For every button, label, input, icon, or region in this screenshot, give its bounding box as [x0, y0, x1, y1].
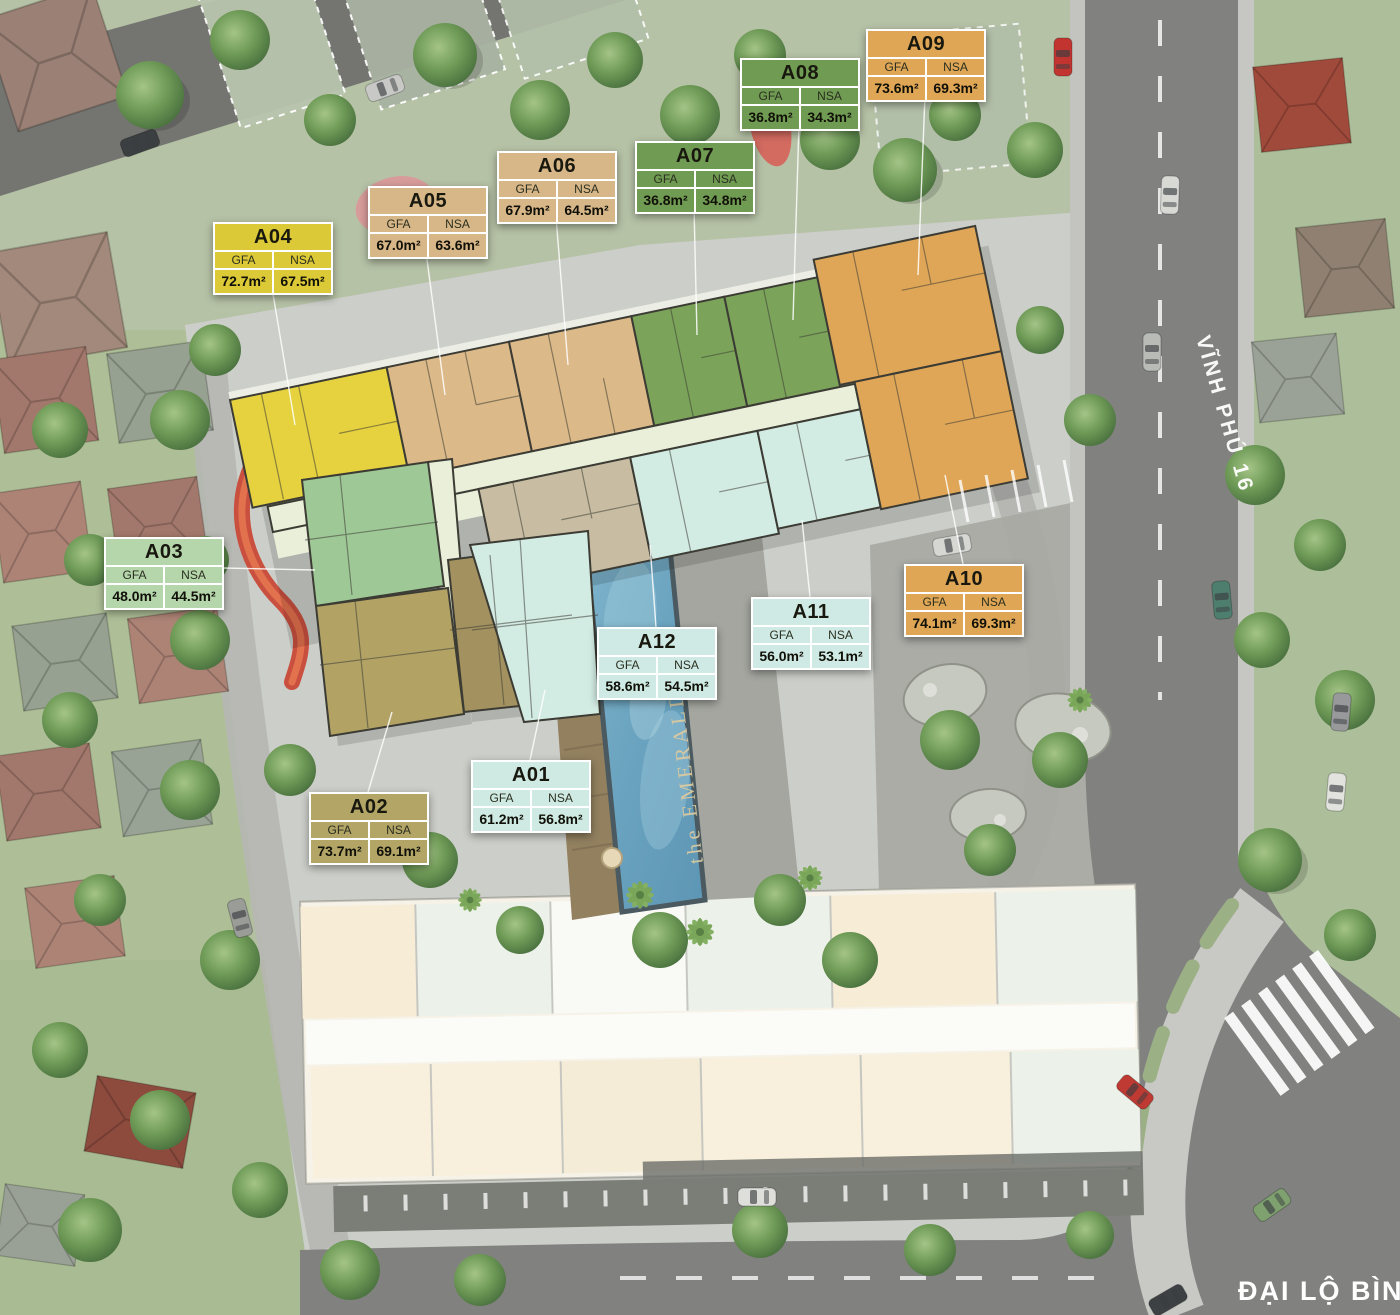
nsa-value: 44.5m² [163, 585, 222, 608]
unit-code: A04 [215, 224, 331, 252]
nsa-value: 69.3m² [963, 612, 1022, 635]
lower-building [300, 884, 1144, 1232]
unit-code: A07 [637, 143, 753, 171]
unit-code: A03 [106, 539, 222, 567]
gfa-header: GFA [753, 627, 810, 645]
unit-label-a06: A06 GFANSA 67.9m²64.5m² [497, 151, 617, 224]
unit-code: A11 [753, 599, 869, 627]
gfa-value: 73.7m² [311, 840, 368, 863]
gfa-value: 67.9m² [499, 199, 556, 222]
nsa-value: 34.8m² [694, 189, 753, 212]
nsa-header: NSA [368, 822, 427, 840]
unit-code: A02 [311, 794, 427, 822]
gfa-header: GFA [370, 216, 427, 234]
unit-code: A12 [599, 629, 715, 657]
gfa-value: 36.8m² [637, 189, 694, 212]
nsa-header: NSA [963, 594, 1022, 612]
nsa-header: NSA [925, 59, 984, 77]
unit-label-a07: A07 GFANSA 36.8m²34.8m² [635, 141, 755, 214]
unit-code: A05 [370, 188, 486, 216]
gfa-value: 58.6m² [599, 675, 656, 698]
street-name-dai-lo-binh: ĐẠI LỘ BÌNH [1238, 1275, 1400, 1306]
gfa-header: GFA [599, 657, 656, 675]
unit-label-a03: A03 GFANSA 48.0m²44.5m² [104, 537, 224, 610]
gfa-value: 72.7m² [215, 270, 272, 293]
nsa-value: 54.5m² [656, 675, 715, 698]
unit-area-a02 [316, 588, 464, 736]
nsa-value: 53.1m² [810, 645, 869, 668]
unit-code: A01 [473, 762, 589, 790]
nsa-header: NSA [427, 216, 486, 234]
unit-label-a04: A04 GFANSA 72.7m²67.5m² [213, 222, 333, 295]
gfa-value: 67.0m² [370, 234, 427, 257]
nsa-value: 67.5m² [272, 270, 331, 293]
gfa-header: GFA [215, 252, 272, 270]
nsa-header: NSA [694, 171, 753, 189]
nsa-header: NSA [163, 567, 222, 585]
nsa-header: NSA [810, 627, 869, 645]
unit-code: A09 [868, 31, 984, 59]
nsa-value: 63.6m² [427, 234, 486, 257]
unit-label-a10: A10 GFANSA 74.1m²69.3m² [904, 564, 1024, 637]
unit-code: A06 [499, 153, 615, 181]
nsa-value: 34.3m² [799, 106, 858, 129]
nsa-header: NSA [530, 790, 589, 808]
unit-label-a01: A01 GFANSA 61.2m²56.8m² [471, 760, 591, 833]
unit-area-a11 [757, 409, 880, 528]
nsa-value: 69.1m² [368, 840, 427, 863]
unit-label-a11: A11 GFANSA 56.0m²53.1m² [751, 597, 871, 670]
gfa-value: 74.1m² [906, 612, 963, 635]
gfa-value: 56.0m² [753, 645, 810, 668]
gfa-header: GFA [311, 822, 368, 840]
gfa-value: 48.0m² [106, 585, 163, 608]
nsa-header: NSA [556, 181, 615, 199]
unit-label-a05: A05 GFANSA 67.0m²63.6m² [368, 186, 488, 259]
gfa-header: GFA [637, 171, 694, 189]
unit-label-a12: A12 GFANSA 58.6m²54.5m² [597, 627, 717, 700]
gfa-header: GFA [499, 181, 556, 199]
unit-label-a09: A09 GFANSA 73.6m²69.3m² [866, 29, 986, 102]
nsa-value: 56.8m² [530, 808, 589, 831]
unit-label-a08: A08 GFANSA 36.8m²34.3m² [740, 58, 860, 131]
nsa-header: NSA [799, 88, 858, 106]
gfa-value: 36.8m² [742, 106, 799, 129]
site-plan: the EMERALD [0, 0, 1400, 1315]
gfa-header: GFA [473, 790, 530, 808]
gfa-header: GFA [106, 567, 163, 585]
nsa-value: 64.5m² [556, 199, 615, 222]
nsa-header: NSA [272, 252, 331, 270]
unit-code: A08 [742, 60, 858, 88]
gfa-header: GFA [742, 88, 799, 106]
nsa-header: NSA [656, 657, 715, 675]
unit-code: A10 [906, 566, 1022, 594]
gfa-value: 61.2m² [473, 808, 530, 831]
gfa-header: GFA [868, 59, 925, 77]
unit-area-a03 [302, 462, 444, 606]
unit-label-a02: A02 GFANSA 73.7m²69.1m² [309, 792, 429, 865]
gfa-header: GFA [906, 594, 963, 612]
gfa-value: 73.6m² [868, 77, 925, 100]
nsa-value: 69.3m² [925, 77, 984, 100]
